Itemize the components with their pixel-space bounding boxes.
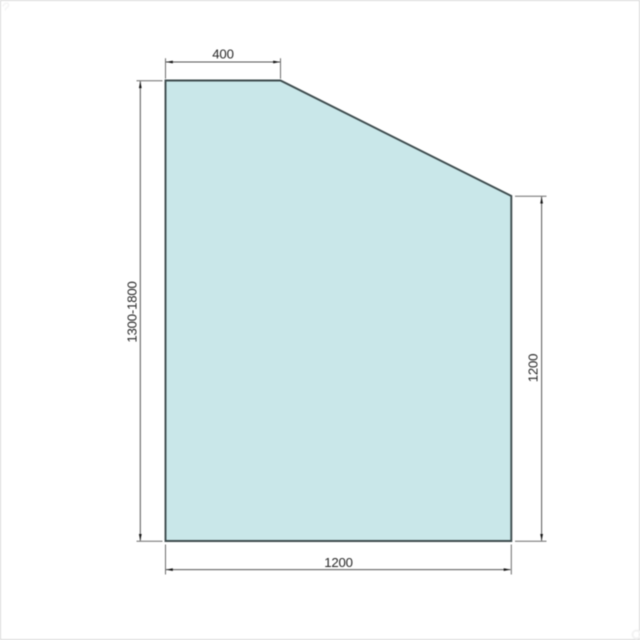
svg-text:1200: 1200	[525, 354, 540, 383]
svg-text:1300-1800: 1300-1800	[125, 281, 140, 342]
svg-text:1200: 1200	[324, 555, 353, 570]
svg-text:400: 400	[212, 47, 233, 62]
